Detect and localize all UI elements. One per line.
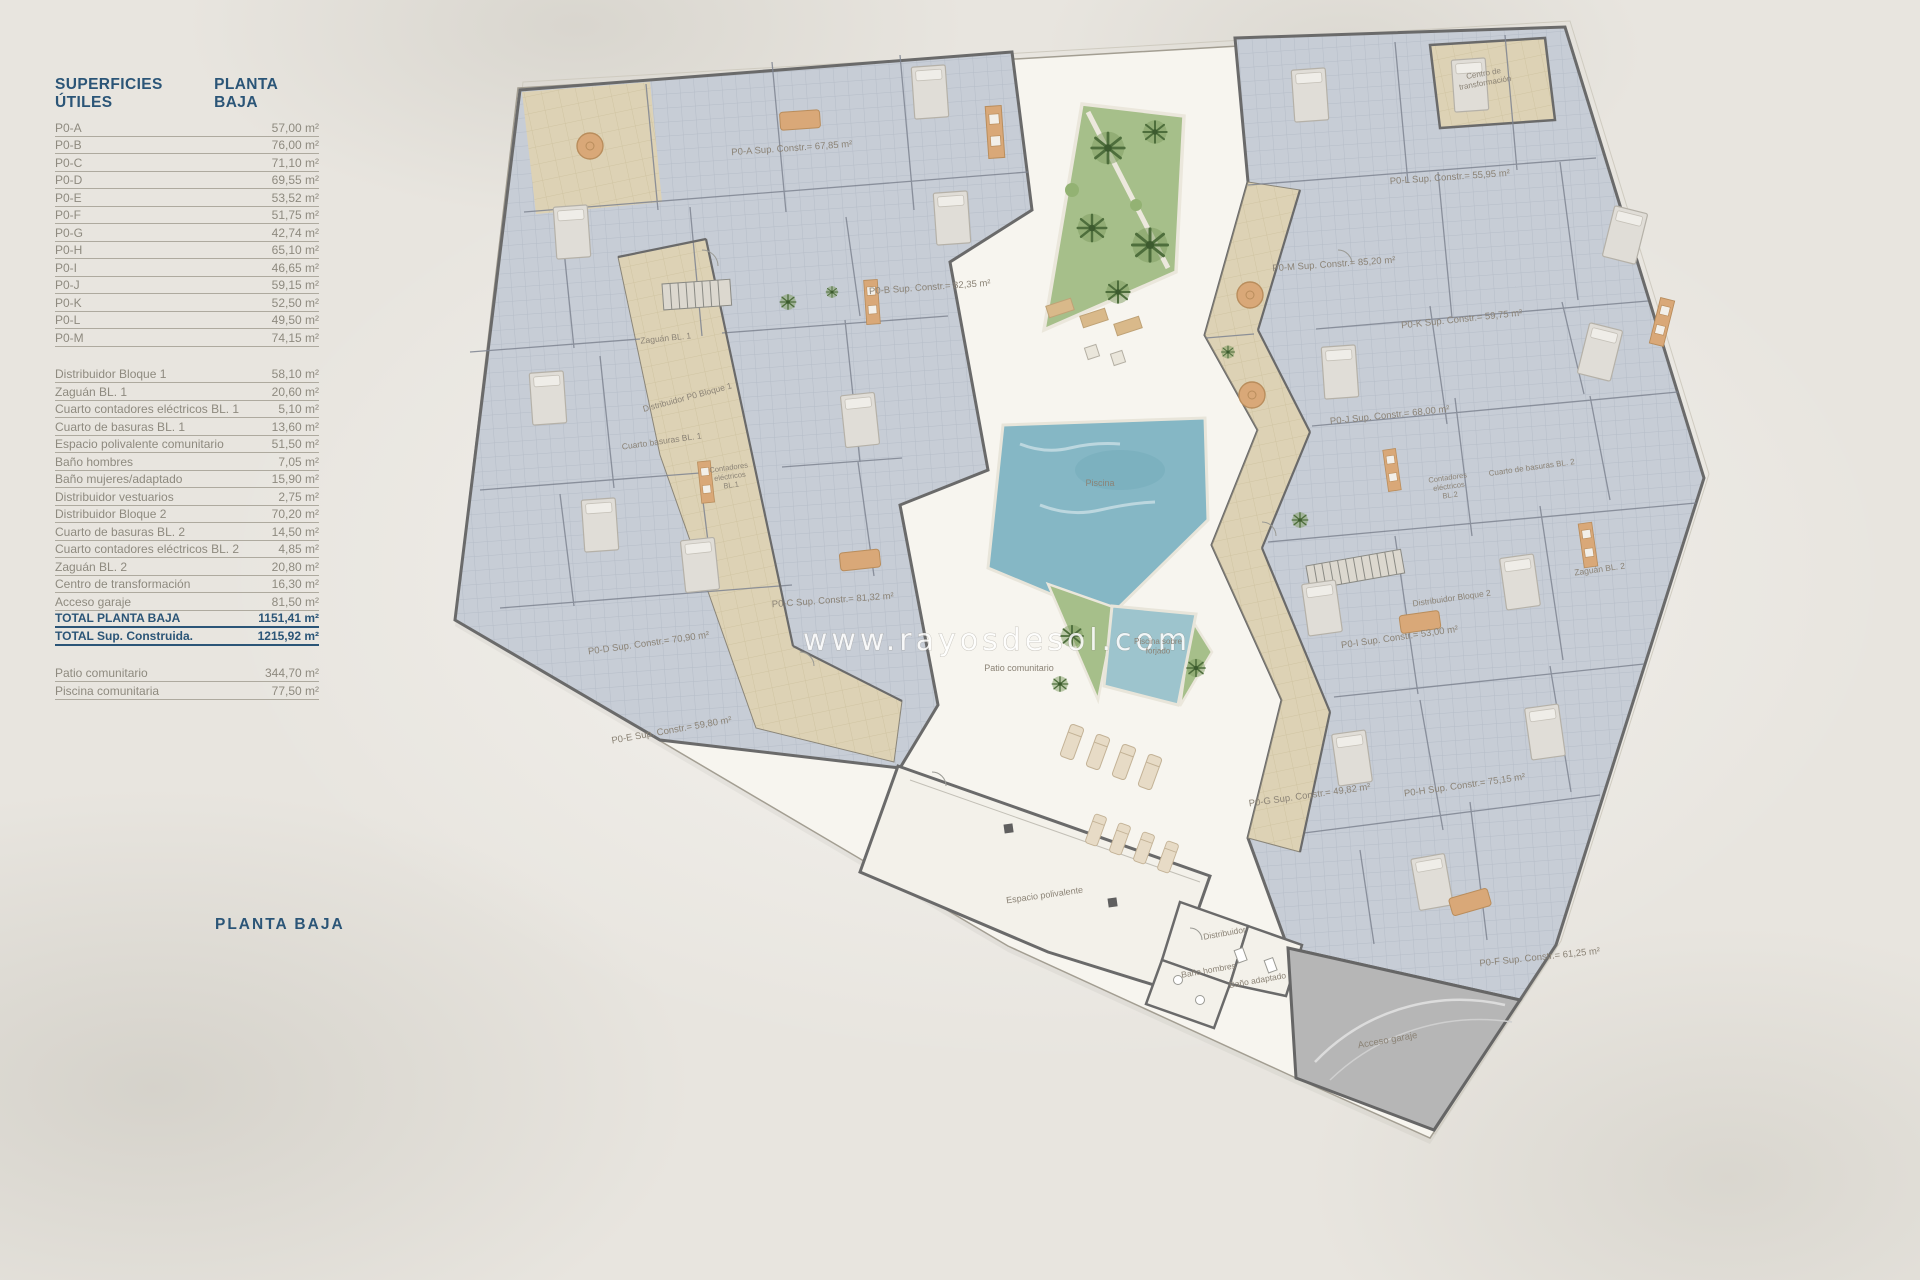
surface-row: Zaguán BL. 120,60 m² <box>55 383 319 401</box>
surface-row-label: P0-E <box>55 191 82 205</box>
surface-row-label: P0-A <box>55 121 82 135</box>
surface-row: P0-B76,00 m² <box>55 137 319 155</box>
surface-group: P0-A57,00 m²P0-B76,00 m²P0-C71,10 m²P0-D… <box>55 119 319 347</box>
surface-row: Acceso garaje81,50 m² <box>55 593 319 611</box>
surface-row-value: 16,30 m² <box>272 577 319 591</box>
surface-row-label: TOTAL PLANTA BAJA <box>55 611 180 625</box>
surface-row-label: P0-J <box>55 278 80 292</box>
surface-row-label: P0-M <box>55 331 84 345</box>
surface-row-label: Zaguán BL. 2 <box>55 560 127 574</box>
surface-row-value: 70,20 m² <box>272 507 319 521</box>
surface-row-value: 4,85 m² <box>278 542 319 556</box>
surface-row-value: 46,65 m² <box>272 261 319 275</box>
surface-row-value: 53,52 m² <box>272 191 319 205</box>
surface-row: Piscina comunitaria77,50 m² <box>55 682 319 700</box>
surface-row-value: 59,15 m² <box>272 278 319 292</box>
surface-row-value: 71,10 m² <box>272 156 319 170</box>
surface-row-label: P0-H <box>55 243 82 257</box>
surface-group: Distribuidor Bloque 158,10 m²Zaguán BL. … <box>55 366 319 646</box>
surface-row-value: 51,75 m² <box>272 208 319 222</box>
surface-row-value: 76,00 m² <box>272 138 319 152</box>
surface-row-label: Distribuidor vestuarios <box>55 490 174 504</box>
surface-row: P0-F51,75 m² <box>55 207 319 225</box>
surface-row: P0-L49,50 m² <box>55 312 319 330</box>
surface-row-value: 52,50 m² <box>272 296 319 310</box>
surface-row: Patio comunitario344,70 m² <box>55 665 319 683</box>
surface-row-value: 20,60 m² <box>272 385 319 399</box>
surface-row-label: Patio comunitario <box>55 666 148 680</box>
floor-plan-sheet: www.rayosdesol.com P0-A Sup. Constr.= 67… <box>0 0 1920 1280</box>
surface-row-value: 14,50 m² <box>272 525 319 539</box>
surface-row-label: Baño hombres <box>55 455 133 469</box>
surface-row: P0-H65,10 m² <box>55 242 319 260</box>
surface-row-value: 13,60 m² <box>272 420 319 434</box>
surface-row-label: TOTAL Sup. Construida. <box>55 629 193 643</box>
stairs-block-1 <box>662 279 732 310</box>
surface-row-value: 20,80 m² <box>272 560 319 574</box>
surface-row-label: P0-B <box>55 138 82 152</box>
surface-row-label: P0-C <box>55 156 82 170</box>
surface-row-value: 69,55 m² <box>272 173 319 187</box>
surface-row-label: Distribuidor Bloque 1 <box>55 367 166 381</box>
surface-row: Cuarto contadores eléctricos BL. 15,10 m… <box>55 401 319 419</box>
surface-row-label: Zaguán BL. 1 <box>55 385 127 399</box>
surface-row-value: 74,15 m² <box>272 331 319 345</box>
surface-row: Zaguán BL. 220,80 m² <box>55 558 319 576</box>
surface-row-value: 1151,41 m² <box>258 611 319 625</box>
surface-row-value: 2,75 m² <box>278 490 319 504</box>
surface-row-label: P0-L <box>55 313 80 327</box>
surface-row-label: Baño mujeres/adaptado <box>55 472 182 486</box>
surface-row: Centro de transformación16,30 m² <box>55 576 319 594</box>
surface-row-label: Cuarto contadores eléctricos BL. 2 <box>55 542 239 556</box>
surface-row-label: P0-K <box>55 296 82 310</box>
surface-row: Cuarto de basuras BL. 214,50 m² <box>55 523 319 541</box>
surface-row: P0-M74,15 m² <box>55 329 319 347</box>
surface-row: P0-E53,52 m² <box>55 189 319 207</box>
surface-row-value: 51,50 m² <box>272 437 319 451</box>
surface-row-label: P0-G <box>55 226 83 240</box>
surface-row-value: 65,10 m² <box>272 243 319 257</box>
surface-row: P0-D69,55 m² <box>55 172 319 190</box>
surface-table-header: SUPERFICIES ÚTILES PLANTA BAJA <box>55 76 319 112</box>
surface-table: SUPERFICIES ÚTILES PLANTA BAJA P0-A57,00… <box>55 76 319 719</box>
legend-title: SUPERFICIES ÚTILES <box>55 76 214 112</box>
surface-row-value: 58,10 m² <box>272 367 319 381</box>
surface-row-value: 81,50 m² <box>272 595 319 609</box>
surface-row: Baño hombres7,05 m² <box>55 453 319 471</box>
surface-row-label: P0-D <box>55 173 82 187</box>
surface-row: Cuarto de basuras BL. 113,60 m² <box>55 418 319 436</box>
surface-row-value: 15,90 m² <box>272 472 319 486</box>
surface-row-value: 1215,92 m² <box>258 629 319 643</box>
surface-row: Espacio polivalente comunitario51,50 m² <box>55 436 319 454</box>
surface-row: P0-I46,65 m² <box>55 259 319 277</box>
surface-row-label: Centro de transformación <box>55 577 190 591</box>
surface-row: P0-K52,50 m² <box>55 294 319 312</box>
surface-row: TOTAL Sup. Construida.1215,92 m² <box>55 628 319 646</box>
surface-row-label: Acceso garaje <box>55 595 131 609</box>
legend-subtitle: PLANTA BAJA <box>214 76 319 112</box>
surface-row: P0-C71,10 m² <box>55 154 319 172</box>
surface-row-value: 57,00 m² <box>272 121 319 135</box>
surface-row-value: 77,50 m² <box>272 684 319 698</box>
surface-row-value: 344,70 m² <box>265 666 319 680</box>
surface-row: P0-J59,15 m² <box>55 277 319 295</box>
surface-row-label: Espacio polivalente comunitario <box>55 437 224 451</box>
surface-row-label: Cuarto de basuras BL. 1 <box>55 420 185 434</box>
surface-row-label: P0-I <box>55 261 77 275</box>
surface-row: P0-G42,74 m² <box>55 224 319 242</box>
surface-row: P0-A57,00 m² <box>55 119 319 137</box>
surface-row-label: Cuarto de basuras BL. 2 <box>55 525 185 539</box>
surface-row: Distribuidor Bloque 270,20 m² <box>55 506 319 524</box>
surface-row: Distribuidor Bloque 158,10 m² <box>55 366 319 384</box>
surface-group: Patio comunitario344,70 m²Piscina comuni… <box>55 665 319 700</box>
plan-label: Piscina <box>1085 478 1114 488</box>
surface-row-label: Piscina comunitaria <box>55 684 159 698</box>
surface-row: TOTAL PLANTA BAJA1151,41 m² <box>55 611 319 629</box>
surface-row-label: P0-F <box>55 208 81 222</box>
surface-row-value: 5,10 m² <box>278 402 319 416</box>
sheet-title: PLANTA BAJA <box>215 916 345 934</box>
surface-table-body: P0-A57,00 m²P0-B76,00 m²P0-C71,10 m²P0-D… <box>55 119 319 700</box>
plan-label: Patio comunitario <box>984 663 1054 673</box>
surface-row-label: Cuarto contadores eléctricos BL. 1 <box>55 402 239 416</box>
watermark: www.rayosdesol.com <box>803 623 1191 658</box>
surface-row: Baño mujeres/adaptado15,90 m² <box>55 471 319 489</box>
surface-row: Distribuidor vestuarios2,75 m² <box>55 488 319 506</box>
surface-row-value: 7,05 m² <box>278 455 319 469</box>
surface-row-value: 42,74 m² <box>272 226 319 240</box>
surface-row-value: 49,50 m² <box>272 313 319 327</box>
surface-row: Cuarto contadores eléctricos BL. 24,85 m… <box>55 541 319 559</box>
surface-row-label: Distribuidor Bloque 2 <box>55 507 166 521</box>
